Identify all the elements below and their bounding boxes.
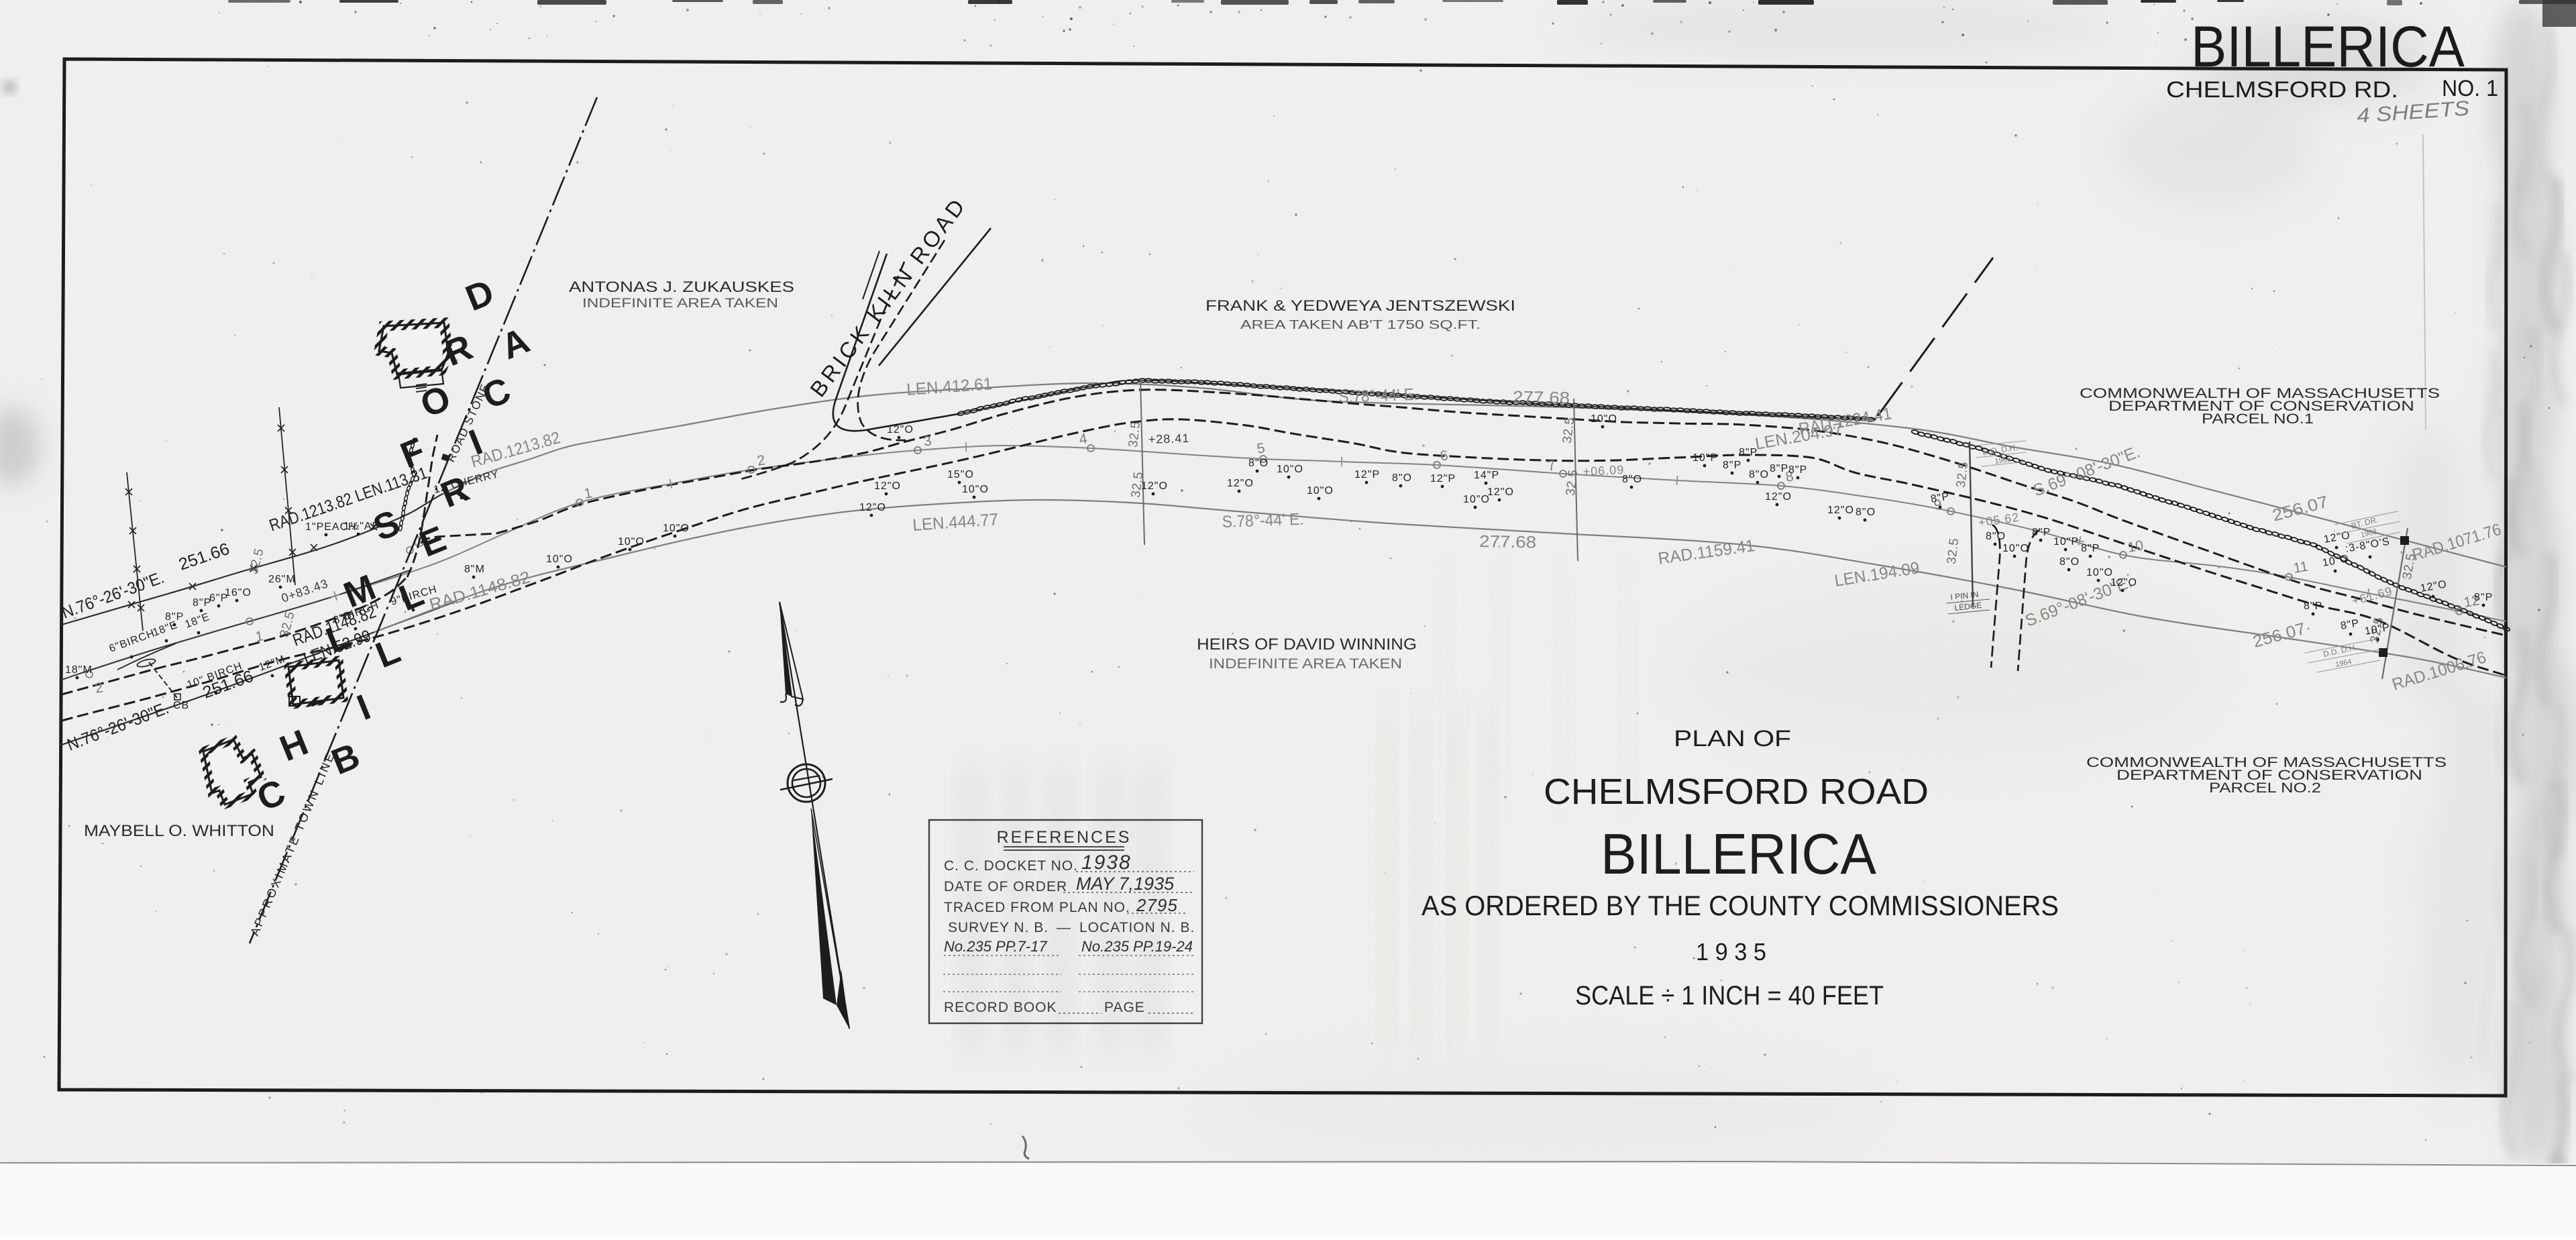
svg-text:CB: CB [173,700,189,711]
svg-text:8"O: 8"O [1622,474,1642,485]
svg-text:2795: 2795 [1136,895,1178,915]
svg-text:REFERENCES: REFERENCES [997,828,1132,847]
svg-text:10"O: 10"O [1463,494,1490,505]
svg-text:10"O: 10"O [2086,567,2113,578]
svg-text:11: 11 [2292,558,2309,576]
svg-text:HEIRS OF DAVID WINNING: HEIRS OF DAVID WINNING [1197,635,1417,654]
svg-text:8"P: 8"P [1723,460,1741,471]
svg-text:8"O: 8"O [1856,507,1876,518]
svg-text:16"O: 16"O [225,587,252,599]
svg-text:PAGE: PAGE [1104,1000,1145,1015]
svg-text:15"O: 15"O [947,469,974,480]
svg-text:12"O: 12"O [1487,486,1514,498]
svg-text:CHELMSFORD ROAD: CHELMSFORD ROAD [1544,772,1929,812]
svg-text:10"O: 10"O [663,523,690,534]
svg-text:8"P: 8"P [2304,601,2322,612]
svg-text:No.235 PP.19-24: No.235 PP.19-24 [1081,938,1193,955]
svg-text:12"O: 12"O [1141,480,1168,492]
svg-text:14"P: 14"P [1474,470,1499,481]
svg-text:10"O: 10"O [2002,543,2029,554]
svg-text:12"P: 12"P [1354,469,1380,480]
svg-text:10"O: 10"O [1277,464,1303,475]
svg-text:TRACED FROM PLAN NO.: TRACED FROM PLAN NO. [944,900,1130,915]
svg-text:12"P: 12"P [1430,473,1456,484]
svg-text:8"M: 8"M [464,564,485,575]
svg-text:10"O: 10"O [618,536,645,548]
svg-text:18"M: 18"M [65,664,93,676]
svg-text:No.235 PP.7-17: No.235 PP.7-17 [944,938,1047,955]
svg-text:277.68: 277.68 [1513,388,1570,407]
svg-text:MAY 7,1935: MAY 7,1935 [1076,874,1175,894]
svg-text:26"M: 26"M [268,574,296,585]
svg-text:+06.09: +06.09 [1582,463,1625,478]
svg-text:8"O: 8"O [1986,531,2006,542]
svg-text:10: 10 [2127,537,2145,556]
svg-text:8"P: 8"P [165,611,184,623]
svg-text:DATE OF ORDER: DATE OF ORDER [944,879,1067,894]
svg-text:PLAN OF: PLAN OF [1674,726,1791,752]
svg-text:10"O: 10"O [1307,485,1334,497]
svg-text:8"O: 8"O [1749,469,1769,480]
svg-text:8"P: 8"P [193,597,211,609]
svg-text:8"P: 8"P [2474,592,2493,603]
svg-text:8"O: 8"O [1392,472,1412,484]
svg-text:INDEFINITE AREA TAKEN: INDEFINITE AREA TAKEN [582,297,778,311]
svg-text:12"O: 12"O [874,480,901,492]
svg-text:PARCEL NO.2: PARCEL NO.2 [2209,780,2321,796]
svg-text:10"O: 10"O [962,484,989,495]
svg-text:10"P: 10"P [1693,452,1718,464]
svg-text:S.78°-44' E.: S.78°-44' E. [1338,385,1418,407]
svg-text:MAYBELL O. WHITTON: MAYBELL O. WHITTON [84,822,274,840]
svg-text:8"P: 8"P [1739,447,1758,458]
svg-text:10"O: 10"O [546,554,573,565]
svg-text:8"P: 8"P [1788,464,1807,476]
svg-text:INDEFINITE AREA TAKEN: INDEFINITE AREA TAKEN [1209,656,1402,672]
svg-text:AS ORDERED BY THE COUNTY COMM: AS ORDERED BY THE COUNTY COMMISSIONERS [1421,890,2059,921]
svg-text:AREA TAKEN AB'T 1750 SQ.FT: AREA TAKEN AB'T 1750 SQ.FT. [1240,318,1481,331]
svg-text:12"O: 12"O [1827,505,1854,516]
svg-text:12"O: 12"O [1227,478,1254,489]
svg-text:PARCEL NO.1: PARCEL NO.1 [2202,411,2314,427]
svg-text:8"O: 8"O [2059,556,2080,568]
svg-text:1 9 3 5: 1 9 3 5 [1696,938,1766,966]
svg-text:LOCATION N. B.: LOCATION N. B. [1079,920,1195,935]
svg-text:SURVEY N. B.: SURVEY N. B. [948,920,1049,935]
svg-text:BILLERICA: BILLERICA [1601,823,1876,886]
svg-text:12"O: 12"O [1765,491,1792,503]
svg-text:8"P: 8"P [2032,527,2051,538]
svg-text:10"P: 10"P [2053,536,2079,548]
svg-text:8"O: 8"O [1248,458,1269,469]
svg-text:BILLERICA: BILLERICA [2191,15,2465,79]
svg-text:+28.41: +28.41 [1148,431,1189,446]
svg-text:8"P: 8"P [2081,543,2100,554]
svg-text:S.78°-44' E.: S.78°-44' E. [1222,510,1304,531]
svg-text:—: — [1057,920,1071,935]
svg-text:ANTONAS J. ZUKAUSKES: ANTONAS J. ZUKAUSKES [569,278,794,295]
svg-text:12"O: 12"O [887,424,914,435]
svg-text:12"O: 12"O [2110,577,2137,588]
svg-text:SCALE ÷ 1 INCH = 40 FEET: SCALE ÷ 1 INCH = 40 FEET [1575,981,1884,1011]
svg-text:1½"AP: 1½"AP [343,521,380,532]
svg-text:12"O: 12"O [859,502,886,513]
svg-text:CHELMSFORD RD.: CHELMSFORD RD. [2166,77,2398,103]
svg-text:C. C. DOCKET NO.: C. C. DOCKET NO. [944,858,1078,874]
svg-text:RECORD BOOK: RECORD BOOK [944,1000,1057,1015]
svg-text:277.68: 277.68 [1479,532,1536,552]
svg-text:FRANK & YEDWEYA JENTSZEWSKI: FRANK & YEDWEYA JENTSZEWSKI [1205,297,1515,314]
svg-text:10"O: 10"O [1591,413,1617,425]
svg-text:1938: 1938 [1081,851,1132,874]
svg-text:8"P: 8"P [1770,463,1788,474]
